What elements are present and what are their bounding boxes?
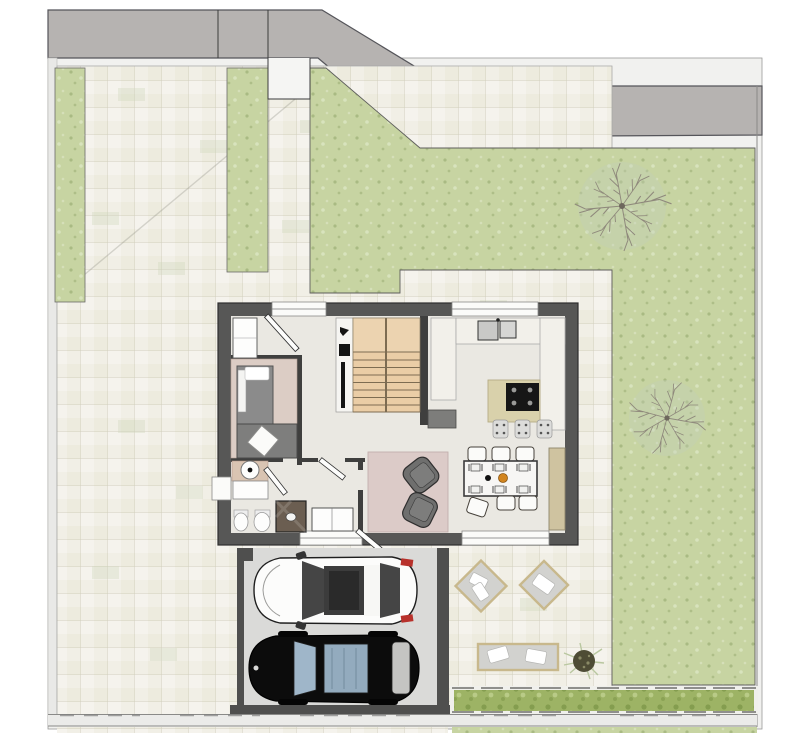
lounge-bench [478, 644, 558, 670]
south-lawn-edge [452, 727, 757, 733]
kitchen-sink [478, 318, 516, 340]
kitchen-counter-east [540, 318, 565, 430]
planting-strip-left [55, 68, 85, 302]
sideboard [549, 448, 565, 530]
fruit-bowl [499, 474, 508, 483]
sunroof [324, 644, 368, 693]
entry-door [212, 477, 231, 500]
black-car [249, 631, 419, 705]
dining-chairs-north [468, 447, 534, 461]
shower [276, 501, 306, 532]
entry-walk [268, 58, 310, 99]
driveway-wall-right [437, 548, 449, 708]
stair-base-block [428, 410, 456, 428]
windshield [302, 561, 324, 620]
bar-stools [493, 420, 552, 438]
planting-strip-middle [227, 68, 268, 272]
toilet [254, 510, 270, 532]
south-paving-edge [57, 727, 448, 733]
living-area [368, 452, 448, 532]
driveway-wall-south [230, 705, 455, 714]
windshield [294, 641, 316, 696]
tall-cabinet-column [431, 318, 456, 400]
hall-cabinet [312, 508, 353, 531]
rear-window [392, 642, 410, 694]
driveway-wall-left [237, 548, 244, 708]
washing-machine [233, 481, 268, 499]
study-room [231, 359, 297, 458]
site-plan-canvas [0, 0, 800, 733]
bed-pillow [245, 367, 269, 380]
cooktop [506, 383, 539, 411]
kitchen-island [488, 380, 540, 422]
rear-window [380, 563, 400, 618]
hedge [454, 690, 754, 711]
front-badge [254, 666, 259, 671]
teapot [485, 475, 491, 481]
driveway [230, 548, 455, 714]
site-plan-svg [0, 0, 800, 733]
bidet [234, 510, 248, 531]
house [212, 302, 578, 552]
white-car [254, 551, 417, 631]
